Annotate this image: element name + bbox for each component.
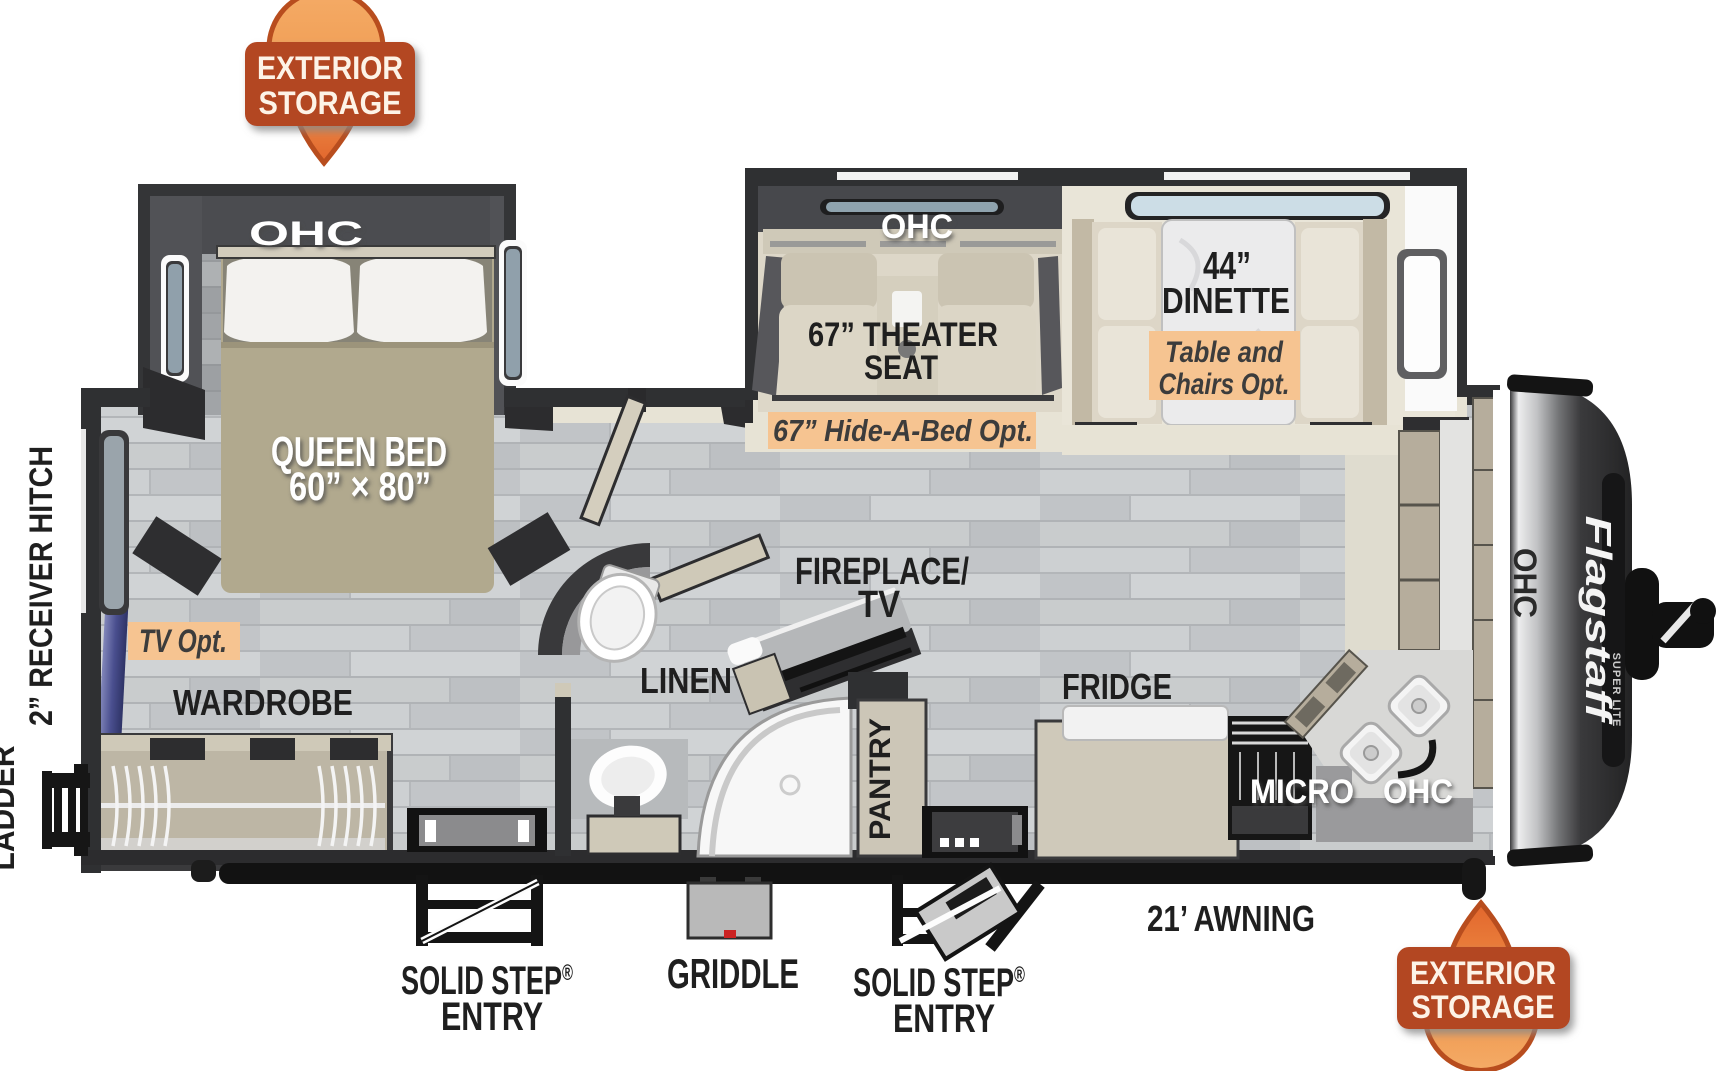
svg-text:LADDER: LADDER <box>0 746 21 871</box>
svg-text:21’ AWNING: 21’ AWNING <box>1147 898 1315 939</box>
svg-text:SEAT: SEAT <box>864 349 938 387</box>
svg-text:EXTERIOR: EXTERIOR <box>1410 955 1556 991</box>
svg-text:OHC: OHC <box>1507 548 1543 618</box>
svg-text:DINETTE: DINETTE <box>1162 280 1290 321</box>
svg-text:67” Hide-A-Bed Opt.: 67” Hide-A-Bed Opt. <box>773 413 1033 448</box>
svg-text:GRIDDLE: GRIDDLE <box>667 950 799 997</box>
svg-text:SUPER LITE: SUPER LITE <box>1610 653 1622 728</box>
svg-text:WARDROBE: WARDROBE <box>173 682 353 723</box>
svg-text:EXTERIOR: EXTERIOR <box>257 50 403 86</box>
svg-text:LINEN: LINEN <box>640 660 732 701</box>
svg-text:MICRO: MICRO <box>1250 773 1354 811</box>
svg-text:ENTRY: ENTRY <box>893 997 995 1041</box>
svg-text:TV Opt.: TV Opt. <box>139 623 227 659</box>
svg-text:OHC: OHC <box>249 215 363 253</box>
svg-text:TV: TV <box>858 584 901 626</box>
svg-text:2” RECEIVER HITCH: 2” RECEIVER HITCH <box>23 446 59 726</box>
svg-text:PANTRY: PANTRY <box>864 718 897 840</box>
svg-text:FRIDGE: FRIDGE <box>1062 666 1172 707</box>
svg-text:ENTRY: ENTRY <box>441 995 543 1039</box>
svg-text:Chairs Opt.: Chairs Opt. <box>1159 368 1290 401</box>
svg-text:STORAGE: STORAGE <box>259 85 402 121</box>
svg-text:OHC: OHC <box>881 208 953 246</box>
svg-text:Table and: Table and <box>1165 336 1284 369</box>
svg-text:60” × 80”: 60” × 80” <box>289 465 431 509</box>
svg-text:OHC: OHC <box>1383 773 1453 811</box>
svg-text:STORAGE: STORAGE <box>1412 989 1555 1025</box>
